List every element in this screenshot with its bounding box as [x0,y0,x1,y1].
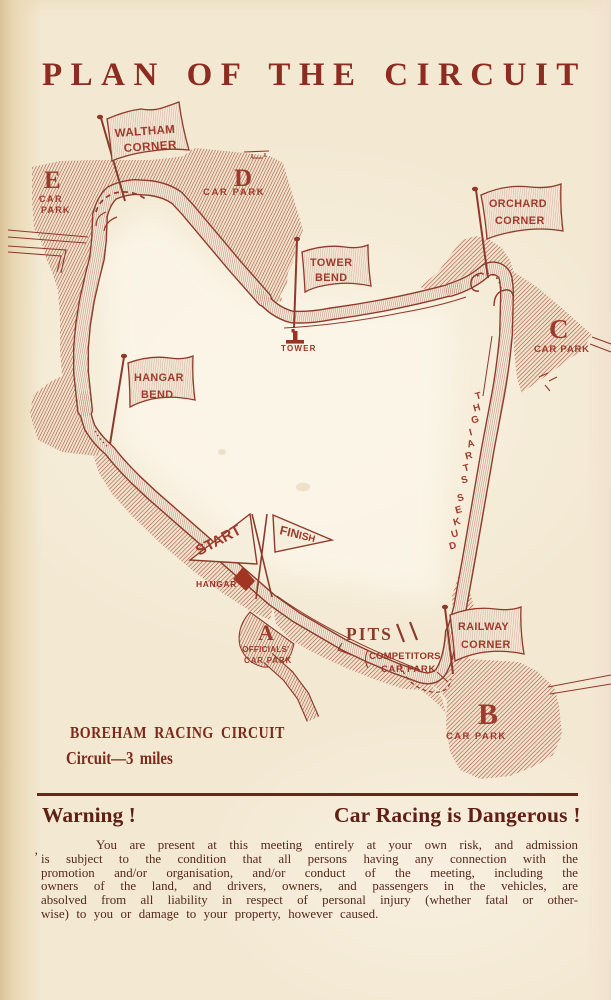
svg-text:S: S [456,492,466,504]
svg-text:CORNER: CORNER [123,138,177,155]
svg-text:E: E [44,167,61,194]
svg-text:B: B [478,698,498,731]
svg-text:K: K [452,516,462,528]
svg-text:CORNER: CORNER [495,215,545,227]
svg-text:PARK: PARK [41,205,71,215]
svg-text:CAR PARK: CAR PARK [446,731,507,742]
svg-text:CAR PARK: CAR PARK [244,656,292,665]
svg-text:CAR PARK: CAR PARK [534,344,590,355]
svg-text:T: T [474,390,483,402]
svg-text:TOWER: TOWER [281,344,317,353]
svg-text:A: A [466,438,476,450]
svg-text:E: E [454,504,464,516]
svg-text:TOWER: TOWER [310,257,353,269]
svg-text:ORCHARD: ORCHARD [489,198,547,210]
svg-text:R: R [464,450,474,462]
svg-text:CAR PARK: CAR PARK [381,664,436,675]
svg-text:BEND: BEND [315,272,348,284]
svg-text:COMPETITORS: COMPETITORS [369,651,441,662]
svg-text:CORNER: CORNER [461,639,511,651]
svg-text:H: H [472,402,482,414]
svg-text:HANGAR: HANGAR [196,579,237,589]
svg-text:CAR: CAR [39,194,63,204]
svg-text:BEND: BEND [141,389,174,401]
svg-text:U: U [450,528,460,540]
svg-text:D: D [448,540,458,552]
svg-text:CAR PARK: CAR PARK [203,187,265,198]
svg-text:G: G [470,414,481,427]
svg-text:S: S [460,474,470,486]
svg-text:C: C [549,314,569,344]
svg-text:HANGAR: HANGAR [134,372,184,384]
svg-text:I: I [468,427,474,438]
svg-text:T: T [462,462,471,474]
svg-text:A: A [258,620,274,645]
svg-text:'OFFICIALS': 'OFFICIALS' [240,645,289,654]
svg-text:PITS: PITS [346,624,393,644]
svg-text:RAILWAY: RAILWAY [458,621,509,633]
